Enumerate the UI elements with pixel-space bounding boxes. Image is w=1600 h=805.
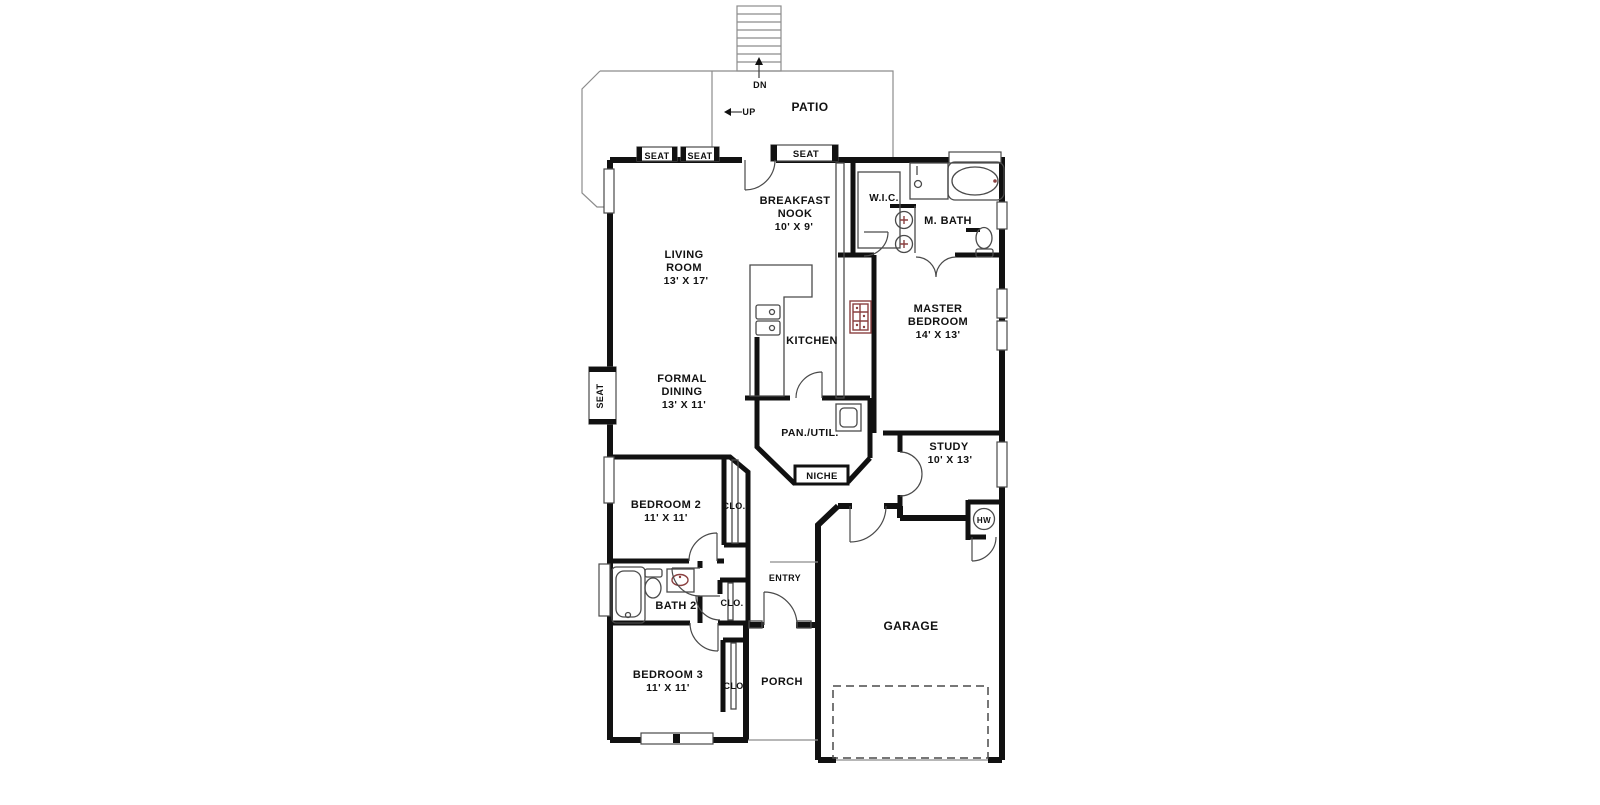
toilet-bath2 [645, 569, 662, 598]
window-living-left [604, 169, 614, 213]
label-study-line1: STUDY [929, 441, 969, 453]
wic-shelf [858, 172, 900, 248]
label-bedroom2-line1: BEDROOM 2 [631, 499, 701, 511]
label-bath2: BATH 2 [655, 600, 696, 612]
dn-arrow-head [755, 57, 763, 65]
label-up: UP [742, 107, 755, 117]
door-pantry [796, 372, 822, 398]
label-breakfast-nook-line2: NOOK [778, 208, 813, 220]
window-bedroom3-bottom [641, 733, 713, 744]
label-bedroom3-line1: BEDROOM 3 [633, 669, 703, 681]
floor-plan-svg: DNUPPATIOSEATSEATSEATSEATBREAKFASTNOOK10… [0, 0, 1600, 805]
label-breakfast-nook-line1: BREAKFAST [760, 195, 831, 207]
label-seat-top-3: SEAT [793, 149, 819, 160]
label-bedroom3-dims: 11' X 11' [646, 682, 690, 694]
label-living-dims: 13' X 17' [664, 275, 709, 287]
label-garage: GARAGE [883, 619, 938, 633]
label-kitchen: KITCHEN [786, 335, 838, 347]
up-arrow-head [724, 108, 731, 116]
label-entry: ENTRY [769, 573, 801, 583]
bathtub-master [948, 162, 1004, 200]
door-bedroom2 [689, 533, 717, 561]
closet-shelf-bedroom3 [731, 643, 736, 709]
label-niche: NICHE [806, 471, 838, 482]
label-study-dims: 10' X 13' [928, 454, 973, 466]
door-master-double [916, 257, 956, 277]
label-dn: DN [753, 80, 767, 90]
sink-double-master [896, 206, 916, 253]
label-porch: PORCH [761, 676, 803, 688]
label-clo-hall: CLO. [720, 598, 743, 608]
label-seat-left: SEAT [595, 383, 605, 408]
washer [836, 404, 861, 431]
label-master-dims: 14' X 13' [916, 329, 961, 341]
patio-outline [582, 71, 893, 207]
door-patio [745, 160, 775, 190]
label-breakfast-nook-dims: 10' X 9' [775, 221, 814, 233]
window-bath2-left [599, 564, 610, 616]
door-front-entry [764, 592, 797, 625]
label-bedroom2-dims: 11' X 11' [644, 512, 688, 524]
door-wic [864, 232, 888, 256]
label-clo-bedroom3: CLO. [723, 681, 746, 691]
door-bedroom3 [690, 623, 718, 651]
label-hw: HW [977, 516, 991, 525]
door-study-double [900, 452, 922, 496]
label-master-line1: MASTER [914, 303, 963, 315]
garage-door-dashed [833, 686, 988, 758]
label-clo-bedroom2: CLO. [722, 501, 745, 511]
door-garage-entry [850, 506, 886, 542]
label-living-line2: ROOM [666, 262, 702, 274]
tub-bath2 [612, 567, 645, 623]
label-dining-dims: 13' X 11' [662, 399, 706, 411]
label-dining-line1: FORMAL [657, 373, 706, 385]
room-labels: DNUPPATIOSEATSEATSEATSEATBREAKFASTNOOK10… [595, 80, 991, 694]
label-wic: W.I.C. [869, 193, 899, 204]
label-patio: PATIO [792, 100, 829, 114]
window-master-right-2 [997, 321, 1007, 350]
label-dining-line2: DINING [662, 386, 703, 398]
window-mbath-right [997, 202, 1007, 229]
label-seat-top-2: SEAT [688, 151, 713, 161]
door-water-heater [972, 537, 996, 561]
label-seat-top-1: SEAT [645, 151, 670, 161]
porch-edge-lines [748, 562, 818, 740]
range-decorative-tile [850, 301, 871, 333]
window-bedroom2-left [604, 457, 614, 503]
label-living-line1: LIVING [664, 249, 703, 261]
door-arcs [672, 160, 996, 651]
window-master-right-1 [997, 289, 1007, 318]
window-study-right [997, 442, 1007, 487]
label-m-bath: M. BATH [924, 215, 972, 227]
shower-master [910, 163, 948, 199]
label-master-line2: BEDROOM [908, 316, 968, 328]
label-pantry-util: PAN./UTIL. [781, 427, 838, 439]
kitchen-sink [756, 305, 780, 335]
floor-plan-canvas: DNUPPATIOSEATSEATSEATSEATBREAKFASTNOOK10… [0, 0, 1600, 805]
